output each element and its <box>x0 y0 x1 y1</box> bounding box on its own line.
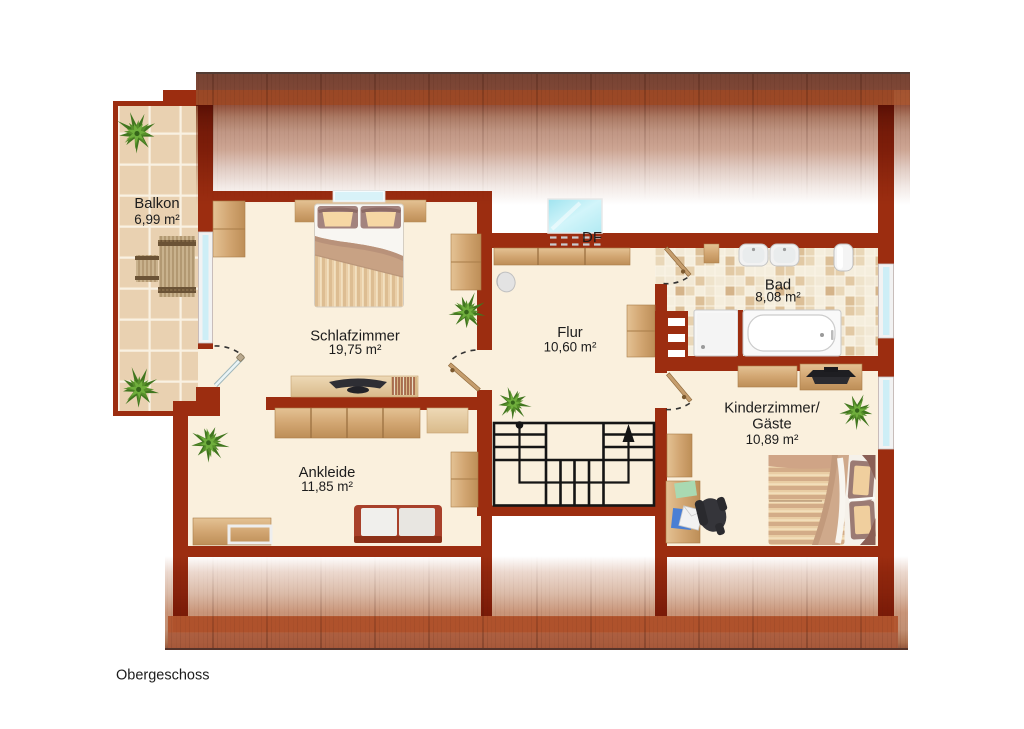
svg-text:10,60 m²: 10,60 m² <box>544 340 597 355</box>
svg-text:Balkon: Balkon <box>134 196 179 212</box>
svg-text:11,85 m²: 11,85 m² <box>301 479 353 494</box>
svg-text:Obergeschoss: Obergeschoss <box>116 668 210 684</box>
svg-text:Kinderzimmer/: Kinderzimmer/ <box>724 401 820 417</box>
svg-text:10,89 m²: 10,89 m² <box>746 432 799 447</box>
svg-text:6,99 m²: 6,99 m² <box>134 212 180 227</box>
svg-text:19,75 m²: 19,75 m² <box>329 342 382 357</box>
svg-text:DF: DF <box>582 229 602 246</box>
svg-text:Gäste: Gäste <box>752 417 791 433</box>
svg-text:8,08 m²: 8,08 m² <box>755 290 801 305</box>
